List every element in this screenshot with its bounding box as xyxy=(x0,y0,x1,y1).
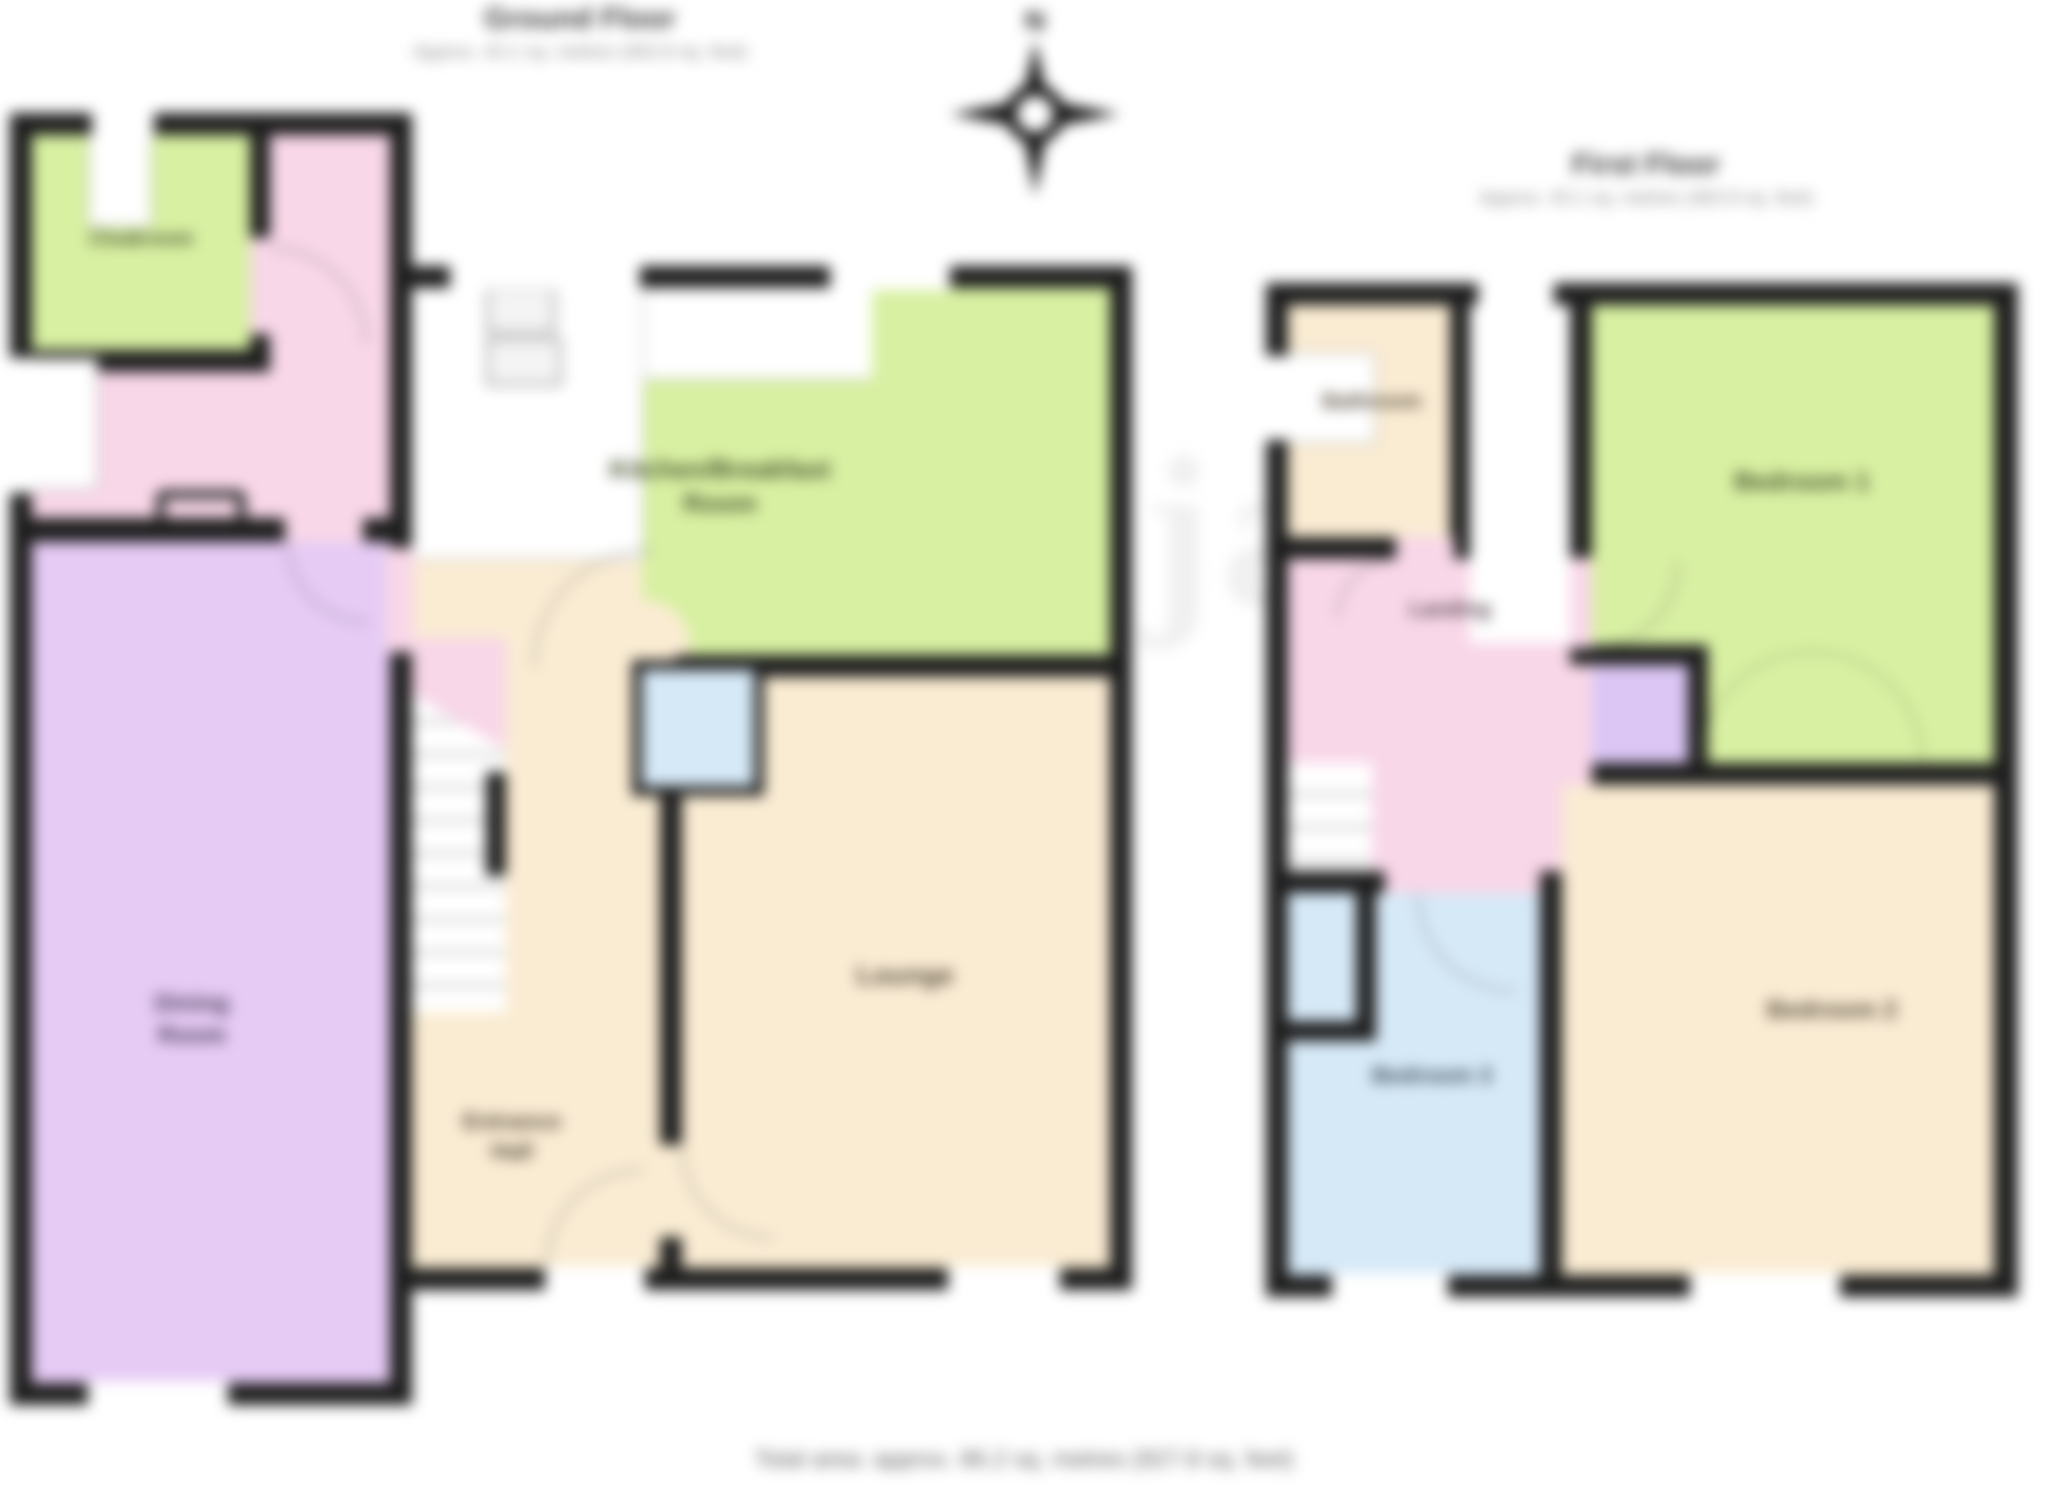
label-hall-line2: Hall xyxy=(412,1136,612,1166)
floorplan-canvas: richard james Ground Floor Approx. 43.1 … xyxy=(0,0,2048,1499)
label-lounge: Lounge xyxy=(710,960,1100,991)
label-kitchen-line2: Room xyxy=(430,486,1010,520)
label-kitchen: Kitchen/Breakfast Room xyxy=(430,452,1010,520)
label-dining: Dining Room xyxy=(52,988,332,1052)
total-area-text: Total area: approx. 86.2 sq. metres (927… xyxy=(524,1446,1524,1474)
compass-north-label: N xyxy=(1025,5,1045,36)
label-landing: Landing xyxy=(1350,598,1550,622)
label-bathroom: Bathroom xyxy=(1272,390,1472,414)
label-dining-line2: Room xyxy=(52,1020,332,1052)
label-dining-line1: Dining xyxy=(52,988,332,1020)
label-bedroom2: Bedroom 2 xyxy=(1632,996,2032,1025)
label-cloakroom: Cloakroom xyxy=(32,228,250,251)
label-bedroom1: Bedroom 1 xyxy=(1602,466,2002,497)
blurred-floorplan: richard james Ground Floor Approx. 43.1 … xyxy=(0,0,2048,1499)
compass-north-icon: N xyxy=(928,0,1148,220)
label-hall-line1: Entrance xyxy=(412,1106,612,1136)
door-swing-arcs xyxy=(0,0,2048,1499)
label-bedroom3: Bedroom 3 xyxy=(1302,1062,1562,1089)
label-kitchen-line1: Kitchen/Breakfast xyxy=(430,452,1010,486)
label-entrance-hall: Entrance Hall xyxy=(412,1106,612,1166)
